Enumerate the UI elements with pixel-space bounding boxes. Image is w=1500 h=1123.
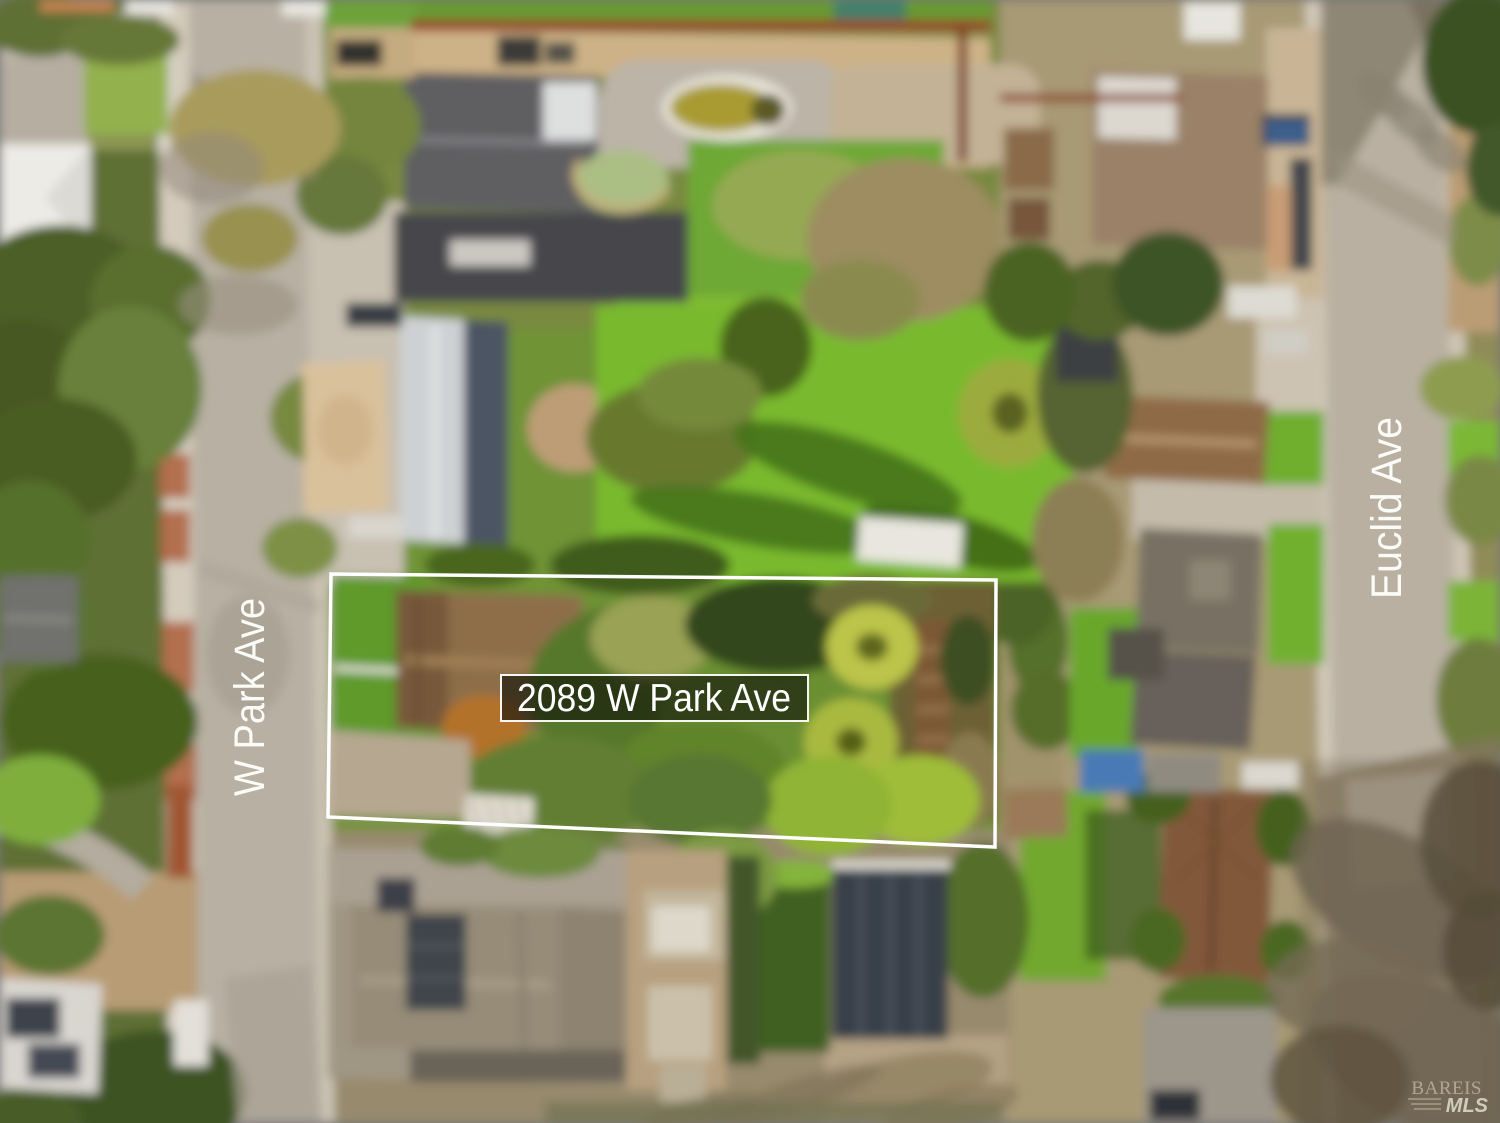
svg-text:Euclid Ave: Euclid Ave (1363, 417, 1411, 599)
svg-text:MLS: MLS (1446, 1095, 1489, 1117)
svg-text:W Park Ave: W Park Ave (226, 598, 274, 796)
svg-text:2089 W Park Ave: 2089 W Park Ave (517, 677, 791, 720)
